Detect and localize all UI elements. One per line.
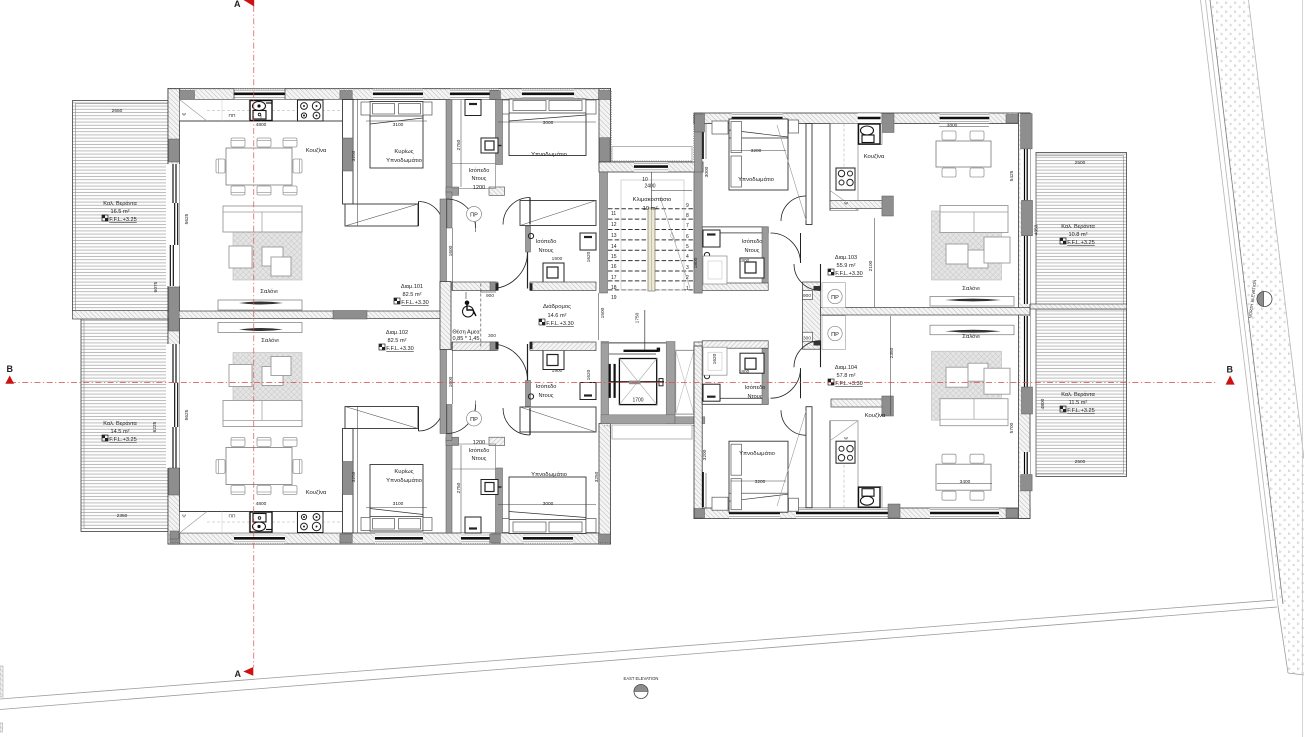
svg-text:2750: 2750 <box>456 482 462 493</box>
svg-text:8: 8 <box>686 213 689 219</box>
svg-text:6: 6 <box>686 234 689 240</box>
svg-text:13: 13 <box>611 233 617 239</box>
svg-text:4: 4 <box>686 254 689 260</box>
svg-text:3100: 3100 <box>393 122 404 128</box>
svg-text:3200: 3200 <box>751 148 762 154</box>
svg-text:Ντους: Ντους <box>538 393 553 399</box>
svg-text:3250: 3250 <box>594 471 600 482</box>
svg-text:11.5 m²: 11.5 m² <box>1069 400 1088 406</box>
svg-text:Σαλόνι: Σαλόνι <box>261 337 279 344</box>
svg-text:ΠΠ: ΠΠ <box>229 113 236 119</box>
svg-text:12: 12 <box>611 222 617 228</box>
svg-text:ΠΡ: ΠΡ <box>831 295 839 301</box>
svg-text:3000: 3000 <box>543 120 554 126</box>
svg-text:F.F.L.+3.30: F.F.L.+3.30 <box>401 300 429 306</box>
svg-text:Κυρίως: Κυρίως <box>394 149 413 155</box>
svg-text:16: 16 <box>611 264 617 270</box>
svg-text:19: 19 <box>611 295 617 301</box>
svg-text:7: 7 <box>686 223 689 229</box>
svg-text:Σαλόνι: Σαλόνι <box>962 333 980 340</box>
svg-text:Ντους: Ντους <box>747 394 762 400</box>
svg-text:6225: 6225 <box>152 421 158 432</box>
svg-text:1700: 1700 <box>632 398 643 404</box>
svg-text:5625: 5625 <box>184 409 190 420</box>
svg-text:82.5 m²: 82.5 m² <box>388 338 407 344</box>
svg-text:1900: 1900 <box>552 368 563 374</box>
svg-text:1200: 1200 <box>473 185 485 191</box>
svg-text:2350: 2350 <box>117 513 128 519</box>
svg-text:F.F.L.+3.30: F.F.L.+3.30 <box>386 346 414 352</box>
svg-text:5625: 5625 <box>184 213 190 224</box>
svg-text:5425: 5425 <box>1009 170 1015 181</box>
svg-text:Ψ: Ψ <box>844 201 848 207</box>
svg-text:F.F.L.+3.25: F.F.L.+3.25 <box>109 217 137 223</box>
svg-text:Θέση Αμεα: Θέση Αμεα <box>452 329 480 336</box>
svg-text:16.5 m²: 16.5 m² <box>111 209 130 215</box>
svg-text:Υπνοδωμάτιο: Υπνοδωμάτιο <box>739 450 776 457</box>
svg-text:1620: 1620 <box>586 251 592 262</box>
svg-text:1900: 1900 <box>552 256 563 262</box>
svg-text:Υπνοδωμάτιο: Υπνοδωμάτιο <box>738 176 775 183</box>
svg-text:F.F.L.+3.30: F.F.L.+3.30 <box>835 271 863 277</box>
svg-text:2100: 2100 <box>868 260 874 271</box>
svg-text:10: 10 <box>642 177 648 183</box>
svg-text:15: 15 <box>611 254 617 260</box>
svg-text:Ντους: Ντους <box>538 248 553 254</box>
svg-text:1620: 1620 <box>712 353 718 364</box>
svg-text:1500: 1500 <box>600 307 606 318</box>
svg-text:4350: 4350 <box>1034 224 1040 235</box>
svg-text:Κουζίνα: Κουζίνα <box>864 154 885 160</box>
svg-text:57.8 m²: 57.8 m² <box>837 373 856 379</box>
svg-text:Διαμ.102: Διαμ.102 <box>386 330 408 336</box>
svg-text:Υπνοδωμάτιο: Υπνοδωμάτιο <box>386 477 423 484</box>
svg-text:0,85 * 1,45: 0,85 * 1,45 <box>452 336 479 342</box>
svg-text:17: 17 <box>611 275 617 281</box>
svg-text:2400: 2400 <box>644 184 655 190</box>
svg-text:14.5 m²: 14.5 m² <box>111 429 130 435</box>
svg-text:14.6 m²: 14.6 m² <box>548 313 567 319</box>
svg-text:Κουζίνα: Κουζίνα <box>306 490 327 496</box>
svg-text:ΠΡ: ΠΡ <box>470 213 478 219</box>
svg-text:Διαμ.101: Διαμ.101 <box>401 284 423 290</box>
svg-text:Σαλόνι: Σαλόνι <box>260 288 278 295</box>
svg-text:ΠΠ: ΠΠ <box>229 514 236 520</box>
svg-text:6075: 6075 <box>153 281 159 292</box>
svg-text:3100: 3100 <box>393 501 404 507</box>
svg-text:F.F.L.+3.25: F.F.L.+3.25 <box>1067 240 1095 246</box>
svg-text:A: A <box>234 0 241 9</box>
svg-text:900: 900 <box>803 293 811 299</box>
svg-text:5700: 5700 <box>1009 422 1015 433</box>
svg-text:1800: 1800 <box>739 258 750 264</box>
svg-text:4800: 4800 <box>256 501 267 507</box>
svg-text:Ντους: Ντους <box>471 176 486 182</box>
svg-text:Ισόπεδο: Ισόπεδο <box>536 238 557 245</box>
svg-text:10.8 m²: 10.8 m² <box>1069 232 1088 238</box>
svg-text:1750: 1750 <box>635 312 641 323</box>
svg-text:Υπνοδωμάτιο: Υπνοδωμάτιο <box>386 157 423 164</box>
svg-text:3800: 3800 <box>947 123 958 129</box>
svg-text:Υπνοδωμάτιο: Υπνοδωμάτιο <box>531 151 568 158</box>
svg-text:Ισόπεδο: Ισόπεδο <box>469 167 490 174</box>
svg-text:11: 11 <box>611 211 616 217</box>
svg-text:Καλ. Βεράντα: Καλ. Βεράντα <box>1061 391 1095 398</box>
svg-text:Υπνοδωμάτιο: Υπνοδωμάτιο <box>531 471 568 478</box>
svg-text:Ισόπεδο: Ισόπεδο <box>536 383 557 390</box>
svg-text:10 m²: 10 m² <box>642 206 657 212</box>
svg-text:Ψ: Ψ <box>182 514 186 520</box>
svg-text:1200: 1200 <box>473 440 485 446</box>
svg-text:Ισόπεδο: Ισόπεδο <box>742 238 763 245</box>
svg-text:Κουζίνα: Κουζίνα <box>865 413 886 419</box>
svg-text:2650: 2650 <box>112 108 123 114</box>
svg-text:F.F.L.+3.30: F.F.L.+3.30 <box>546 321 574 327</box>
svg-text:A: A <box>235 669 242 679</box>
svg-text:Κυρίως: Κυρίως <box>394 469 413 475</box>
svg-text:14: 14 <box>611 244 617 250</box>
svg-text:Διαμ.103: Διαμ.103 <box>835 255 857 261</box>
svg-text:900: 900 <box>486 293 494 299</box>
svg-text:4800: 4800 <box>256 122 267 128</box>
svg-text:Ντους: Ντους <box>471 456 486 462</box>
svg-text:Καλ. Βεράντα: Καλ. Βεράντα <box>1061 223 1095 230</box>
svg-text:B: B <box>7 364 14 374</box>
svg-text:B: B <box>1227 365 1234 375</box>
svg-text:18: 18 <box>611 285 617 291</box>
svg-text:9: 9 <box>686 203 689 209</box>
svg-text:F.F.L.+3.30: F.F.L.+3.30 <box>835 381 863 387</box>
svg-text:300: 300 <box>803 336 811 342</box>
svg-text:F.F.L.+3.25: F.F.L.+3.25 <box>109 437 137 443</box>
svg-text:300: 300 <box>488 333 496 339</box>
svg-text:82.5 m²: 82.5 m² <box>403 292 422 298</box>
svg-text:2: 2 <box>686 275 689 281</box>
svg-text:1800: 1800 <box>739 369 750 375</box>
svg-text:1: 1 <box>686 286 689 292</box>
svg-text:2500: 2500 <box>1075 160 1086 166</box>
svg-text:3200: 3200 <box>755 479 766 485</box>
svg-text:1600: 1600 <box>448 245 454 256</box>
svg-text:EAST ELEVATION: EAST ELEVATION <box>624 676 659 681</box>
svg-text:1600: 1600 <box>448 376 454 387</box>
svg-text:Διαμ.104: Διαμ.104 <box>835 365 857 371</box>
svg-text:Ντους: Ντους <box>744 248 759 254</box>
svg-text:2500: 2500 <box>1075 459 1086 465</box>
svg-text:3: 3 <box>686 265 689 271</box>
svg-text:1800: 1800 <box>693 257 699 268</box>
svg-text:Κουζίνα: Κουζίνα <box>306 148 327 154</box>
svg-text:ΠΡ: ΠΡ <box>831 332 839 338</box>
svg-text:Διάδρομος: Διάδρομος <box>543 303 571 310</box>
svg-text:Σαλόνι: Σαλόνι <box>962 285 980 292</box>
svg-text:2750: 2750 <box>456 139 462 150</box>
svg-text:1620: 1620 <box>586 369 592 380</box>
svg-text:3250: 3250 <box>351 150 357 161</box>
svg-text:3400: 3400 <box>960 479 971 485</box>
svg-text:Καλ. Βεράντα: Καλ. Βεράντα <box>103 200 137 207</box>
svg-text:F.F.L.+3.25: F.F.L.+3.25 <box>1067 408 1095 414</box>
svg-text:Καλ. Βεράντα: Καλ. Βεράντα <box>103 420 137 427</box>
svg-text:Ισόπεδο: Ισόπεδο <box>745 384 766 391</box>
svg-text:Ψ: Ψ <box>182 112 186 118</box>
svg-text:Ψ: Ψ <box>844 436 848 442</box>
svg-text:ΠΡ: ΠΡ <box>470 417 478 423</box>
svg-text:Κλιμακοστάσιο: Κλιμακοστάσιο <box>633 196 672 203</box>
svg-text:55.9 m²: 55.9 m² <box>837 263 856 269</box>
svg-text:3000: 3000 <box>543 501 554 507</box>
svg-text:4800: 4800 <box>1040 398 1046 409</box>
svg-text:3200: 3200 <box>702 449 708 460</box>
svg-text:3000: 3000 <box>704 166 710 177</box>
svg-text:5: 5 <box>686 244 689 250</box>
svg-text:2350: 2350 <box>889 347 895 358</box>
svg-text:3250: 3250 <box>351 471 357 482</box>
svg-text:Ισόπεδο: Ισόπεδο <box>469 447 490 454</box>
